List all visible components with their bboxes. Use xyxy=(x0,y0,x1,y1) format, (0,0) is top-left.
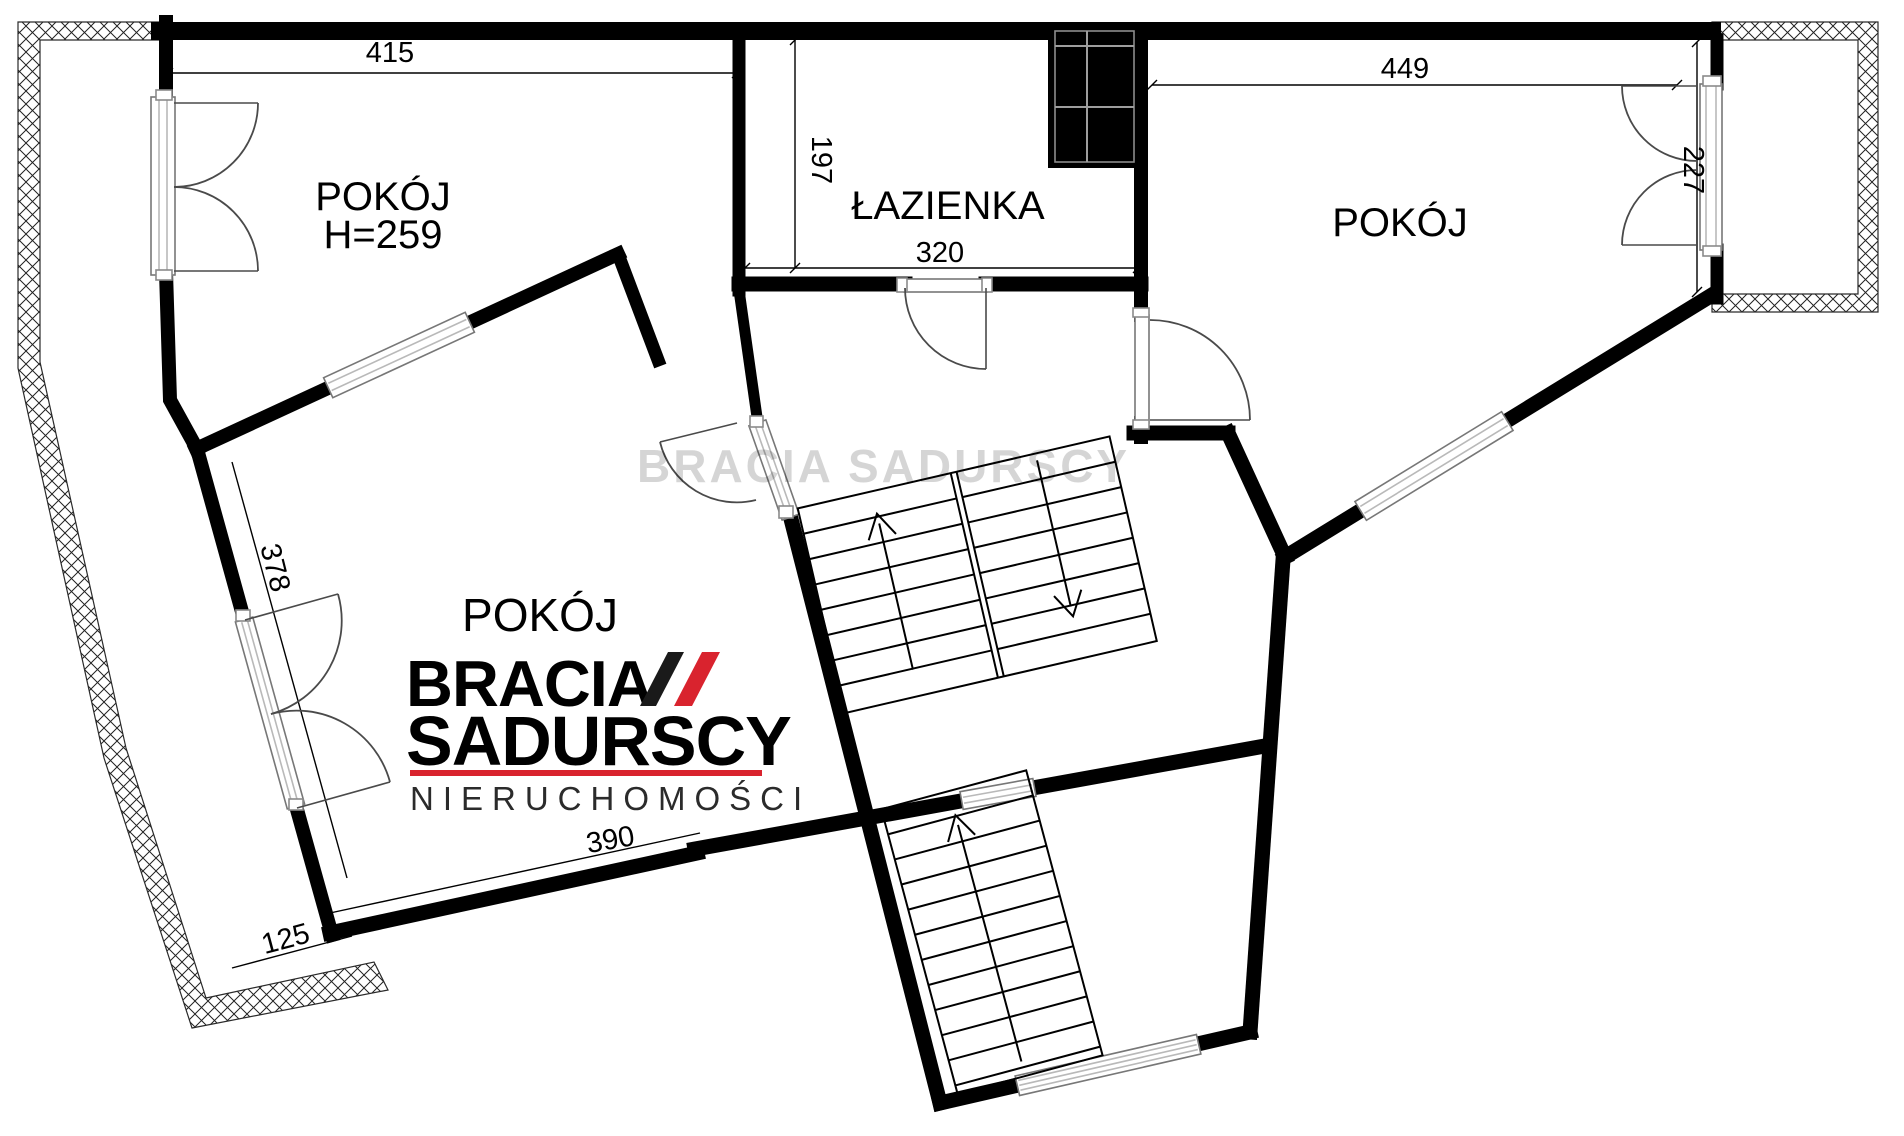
dimension-labels: 415 197 320 449 227 378 390 125 xyxy=(253,37,1709,961)
ventilation-shaft xyxy=(1048,24,1140,168)
doorframe-room-bottom-left xyxy=(235,617,304,809)
dim-390: 390 xyxy=(584,820,637,860)
dim-227: 227 xyxy=(1677,146,1709,194)
agency-logo: BRACIA SADURSCY NIERUCHOMOŚCI xyxy=(406,647,811,817)
logo-red-slash xyxy=(674,652,720,706)
window-top-left xyxy=(151,97,175,275)
room-top-left-ceiling: H=259 xyxy=(324,213,443,257)
door-hall-to-right-room xyxy=(1150,320,1250,420)
window-diagonal-left xyxy=(324,312,475,397)
room-top-right-label: POKÓJ xyxy=(1332,200,1468,245)
dim-320: 320 xyxy=(916,237,964,269)
window-stairwell-bottom xyxy=(1015,1034,1201,1095)
logo-line3: NIERUCHOMOŚCI xyxy=(410,779,811,817)
window-diagonal-right xyxy=(1355,412,1513,521)
doorframe-hall-right xyxy=(1135,315,1149,423)
floor-plan-page: BRACIA SADURSCY POKÓJ H=259 ŁAZIENKA POK… xyxy=(0,0,1904,1136)
door-french-top-left xyxy=(174,103,258,271)
room-labels: POKÓJ H=259 ŁAZIENKA POKÓJ POKÓJ xyxy=(315,174,1468,641)
logo-line2: SADURSCY xyxy=(406,702,791,780)
dim-415: 415 xyxy=(366,37,414,69)
logo-underline xyxy=(410,770,762,776)
doorframe-bathroom xyxy=(904,279,987,292)
door-bathroom xyxy=(905,288,986,369)
floor-plan-canvas: BRACIA SADURSCY POKÓJ H=259 ŁAZIENKA POK… xyxy=(0,0,1904,1136)
room-bottom-left-label: POKÓJ xyxy=(462,589,618,641)
dim-197: 197 xyxy=(805,136,837,184)
dim-125: 125 xyxy=(258,918,313,961)
bathroom-label: ŁAZIENKA xyxy=(851,184,1045,228)
dim-449: 449 xyxy=(1381,53,1429,85)
dim-378: 378 xyxy=(253,540,296,595)
balcony-hatch-right xyxy=(1712,22,1878,312)
staircase-lower xyxy=(881,770,1102,1094)
terrace-hatch-left xyxy=(18,22,388,1028)
watermark-text: BRACIA SADURSCY xyxy=(637,440,1130,492)
